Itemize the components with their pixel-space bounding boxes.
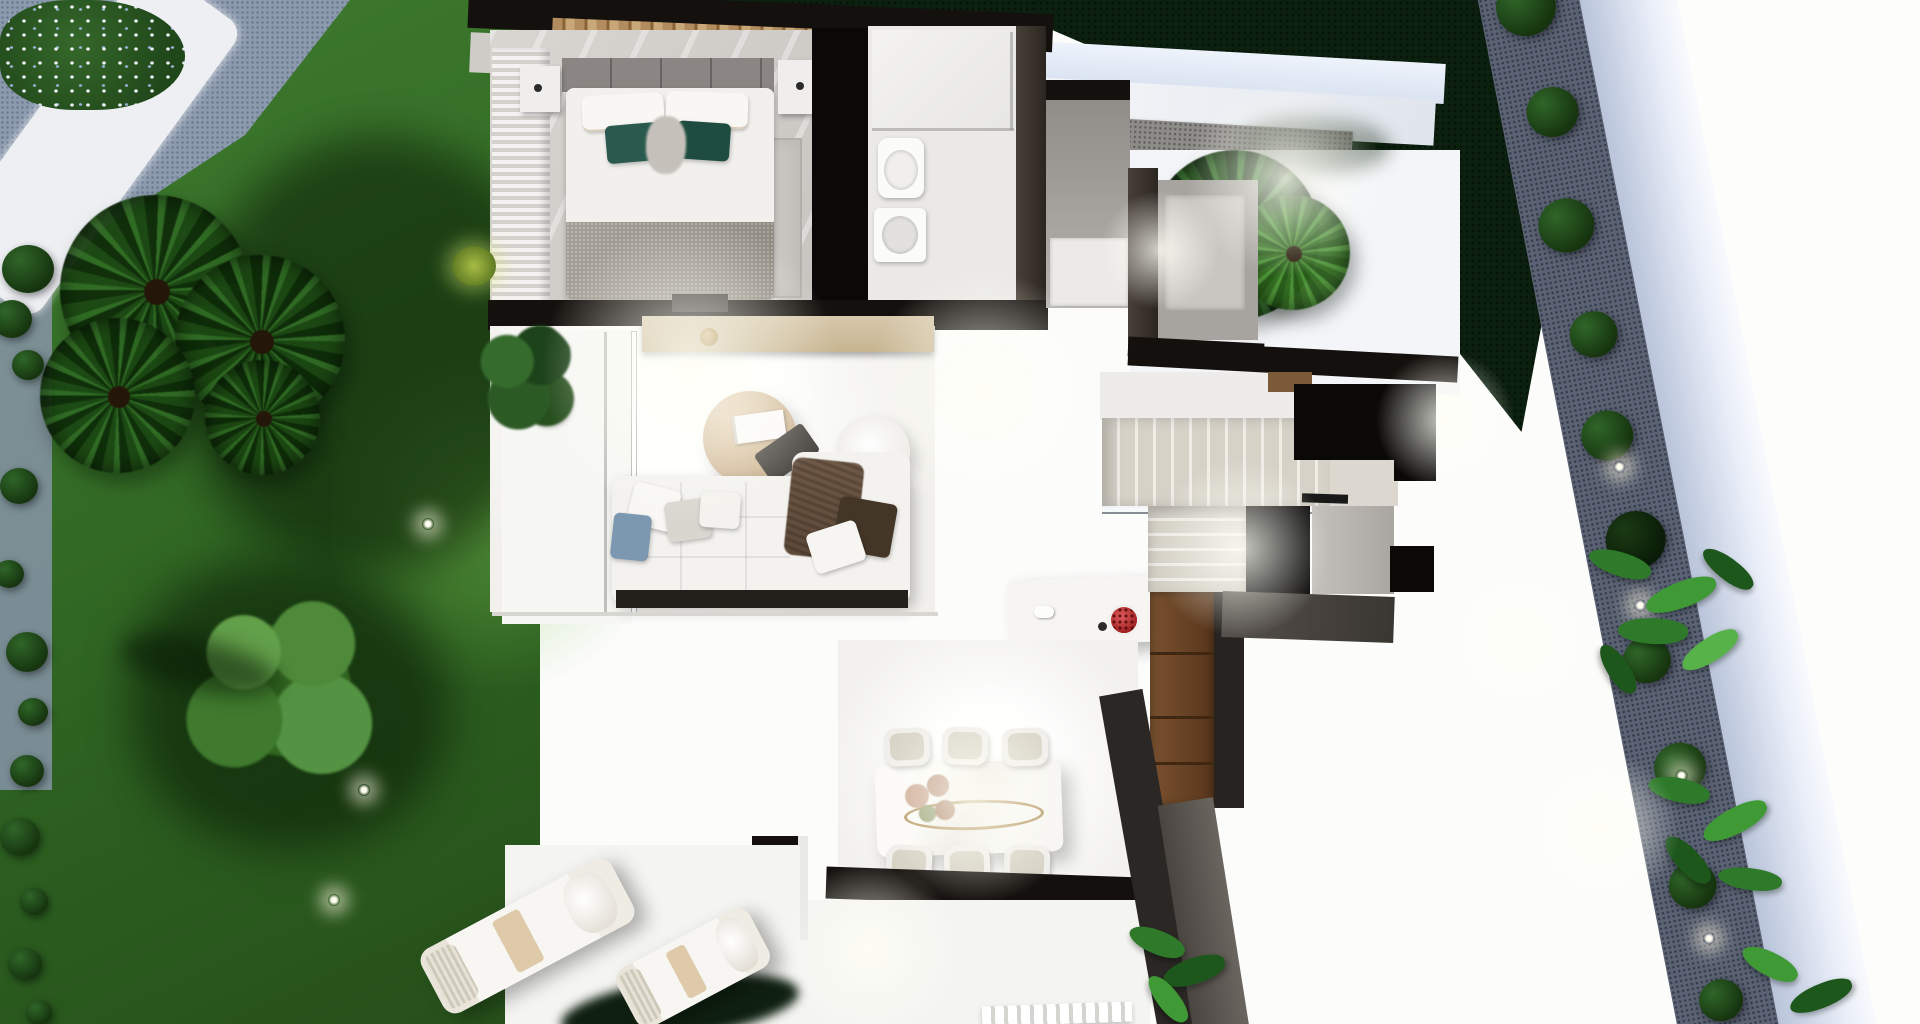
sink-basin [882,216,918,254]
fur-throw [645,115,687,174]
boxwood-bush [8,948,42,980]
lounger-towel [665,943,708,999]
faucet [1034,606,1054,618]
boxwood-bush [12,350,44,380]
floor-step-line [492,612,938,616]
garden-light [328,894,340,906]
wardrobe [812,28,868,304]
red-fruit-bowl [1108,604,1140,636]
light-glow [1150,458,1330,638]
palm-tree [40,318,195,473]
boxwood-bush [6,632,48,672]
bedside-lamp [534,84,542,92]
palm-tree [205,360,320,475]
sofa-cushion [610,512,653,562]
cabinet-shelf-line [1150,762,1214,765]
stair-black-wall [1390,546,1434,592]
flower-bush [0,0,185,110]
lounger-towel [491,909,545,974]
bathroom-east-wall [1016,26,1046,308]
bedside-lamp [796,82,804,90]
cabinet-shelf-line [1150,716,1214,719]
cabinet-shelf-line [1150,652,1214,655]
entry-hall-top-wall [1046,80,1130,100]
cooktop-knob [1098,622,1107,631]
light-glow [1100,190,1220,310]
boxwood-bush [26,1000,52,1024]
toilet-seat [884,150,918,190]
light-glow [1440,560,1600,720]
boxwood-bush [10,755,44,787]
boxwood-bush [20,888,48,915]
lit-bush [452,246,496,286]
kitchen-island [1007,575,1163,646]
shower [872,30,1014,130]
light-glow [865,270,1105,510]
bed-headboard [562,58,774,92]
boxwood-bush [2,245,54,293]
light-glow [1375,350,1515,490]
boxwood-bush [0,818,40,856]
shower-glass [1010,32,1013,130]
media-bench [616,590,908,608]
boxwood-bush [18,698,48,726]
boxwood-bush [0,468,38,504]
light-glow [540,218,840,518]
floorplan-render [0,0,1920,1024]
lounger-pillow [555,865,625,941]
light-glow [1520,750,1680,910]
shower-glass [872,128,1014,131]
garden-light [358,784,370,796]
garden-light [422,518,434,530]
